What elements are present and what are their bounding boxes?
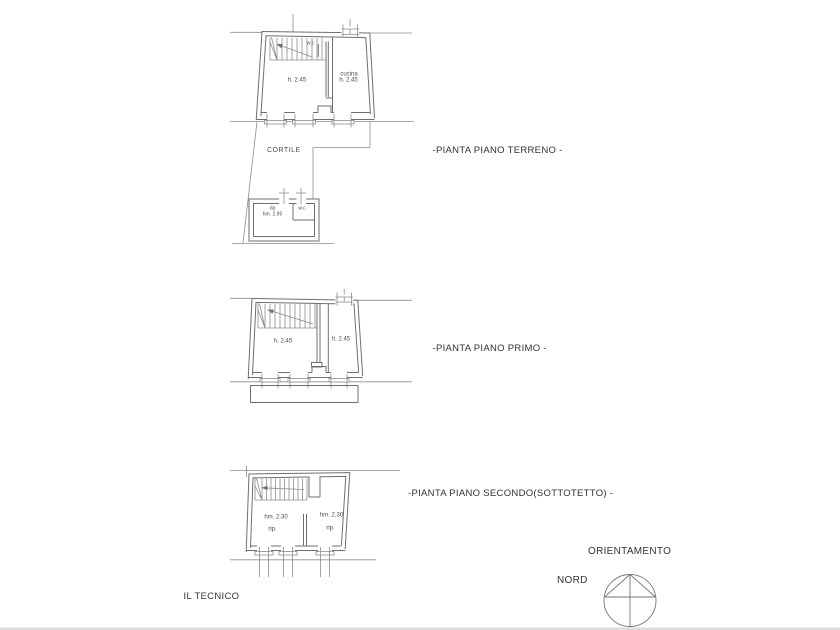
secondo-left-height-label: hm. 2.30	[264, 515, 287, 522]
terreno-stairs	[270, 38, 326, 61]
primo-left-height-label: h. 2.45	[274, 338, 292, 345]
secondo-right-room-label: rip.	[326, 525, 334, 532]
plan-terreno-title: -PIANTA PIANO TERRENO -	[433, 146, 563, 156]
annex-building	[249, 188, 319, 241]
secondo-right-height-label: hm. 2.30	[320, 513, 343, 520]
secondo-left-room-label: rip.	[268, 527, 276, 534]
plan-primo-title: -PIANTA PIANO PRIMO -	[433, 344, 547, 354]
north-label: NORD	[557, 575, 588, 586]
plan-secondo-title: -PIANTA PIANO SECONDO(SOTTOTETTO) -	[408, 489, 613, 499]
cortile-label: CORTILE	[267, 147, 301, 155]
terreno-kitchen-height-label: h. 2.45	[339, 78, 357, 85]
primo-stairs	[258, 304, 317, 329]
terreno-main-height-label: h. 2.45	[288, 78, 306, 85]
cortile-boundary	[232, 121, 370, 244]
secondo-stairs	[255, 479, 307, 501]
terreno-wc-label: w.c	[307, 41, 314, 47]
primo-right-height-label: h. 2.45	[332, 337, 350, 344]
plan-drawings	[0, 0, 840, 630]
annex-height-label: hm. 2.95	[263, 212, 282, 218]
secondo-window-sills	[255, 547, 334, 577]
primo-window-sills	[260, 374, 349, 389]
technician-label: IL TECNICO	[184, 592, 240, 602]
primo-balcony	[251, 386, 359, 403]
terreno-window-sills	[265, 114, 355, 128]
orientation-title: ORIENTAMENTO	[588, 546, 671, 557]
annex-wc-label: w.c	[298, 206, 305, 212]
floorplan-sheet: w.c h. 2.45 cucina h. 2.45 CORTILE rip h…	[0, 0, 840, 630]
compass-icon	[604, 575, 656, 627]
